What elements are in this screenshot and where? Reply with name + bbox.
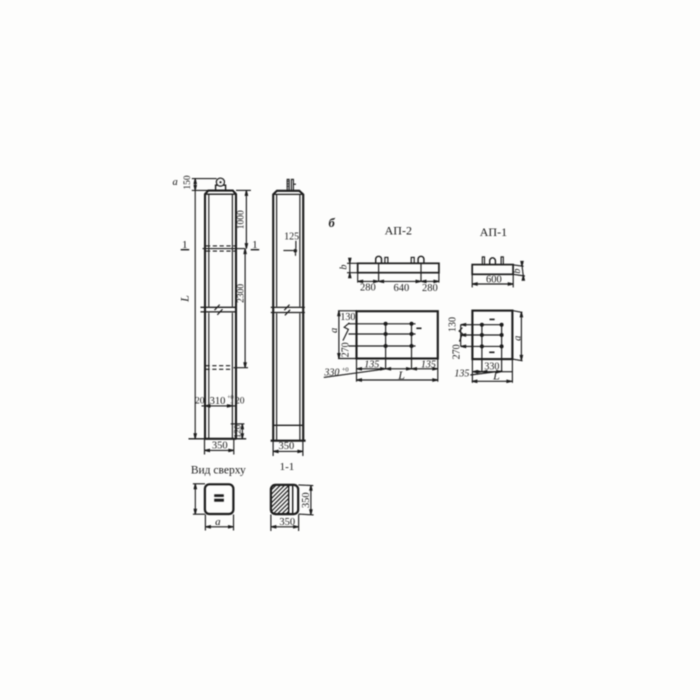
- svg-text:20: 20: [235, 397, 245, 407]
- svg-text:310: 310: [210, 396, 226, 407]
- svg-text:АП-1: АП-1: [480, 225, 507, 239]
- svg-text:б: б: [329, 216, 336, 230]
- svg-text:-3: -3: [228, 402, 233, 408]
- svg-text:a: a: [215, 516, 221, 528]
- svg-text:640: 640: [394, 283, 410, 294]
- svg-text:135: 135: [454, 369, 469, 380]
- svg-text:130: 130: [447, 317, 458, 332]
- svg-text:b: b: [338, 265, 349, 270]
- svg-text:L: L: [397, 368, 405, 382]
- svg-text:350: 350: [301, 492, 312, 508]
- svg-text:a: a: [512, 336, 523, 341]
- svg-text:АП-2: АП-2: [385, 224, 412, 238]
- svg-text:20: 20: [195, 397, 205, 407]
- svg-text:135: 135: [364, 359, 379, 370]
- svg-text:a: a: [329, 328, 340, 333]
- svg-text:280: 280: [360, 283, 376, 294]
- svg-text:270: 270: [341, 342, 352, 357]
- svg-text:1-1: 1-1: [280, 461, 295, 473]
- svg-text:135: 135: [421, 359, 436, 370]
- svg-text:280: 280: [422, 283, 438, 294]
- svg-text:L: L: [492, 368, 500, 382]
- svg-text:150: 150: [183, 175, 193, 190]
- svg-text:L: L: [178, 295, 192, 303]
- svg-text:Вид сверху: Вид сверху: [191, 464, 246, 476]
- svg-text:350: 350: [279, 441, 295, 452]
- svg-text:350: 350: [212, 440, 228, 451]
- svg-text:125: 125: [284, 231, 299, 242]
- svg-text:2300: 2300: [236, 284, 246, 303]
- svg-text:a: a: [173, 177, 178, 188]
- svg-text:+0: +0: [227, 395, 233, 401]
- svg-text:130: 130: [340, 312, 355, 323]
- svg-text:350: 350: [279, 517, 295, 528]
- svg-text:b: b: [512, 269, 523, 274]
- svg-text:+0: +0: [342, 366, 349, 373]
- svg-text:600: 600: [486, 275, 502, 286]
- svg-text:1000: 1000: [237, 210, 247, 229]
- svg-text:120: 120: [232, 424, 242, 438]
- svg-text:270: 270: [451, 344, 462, 359]
